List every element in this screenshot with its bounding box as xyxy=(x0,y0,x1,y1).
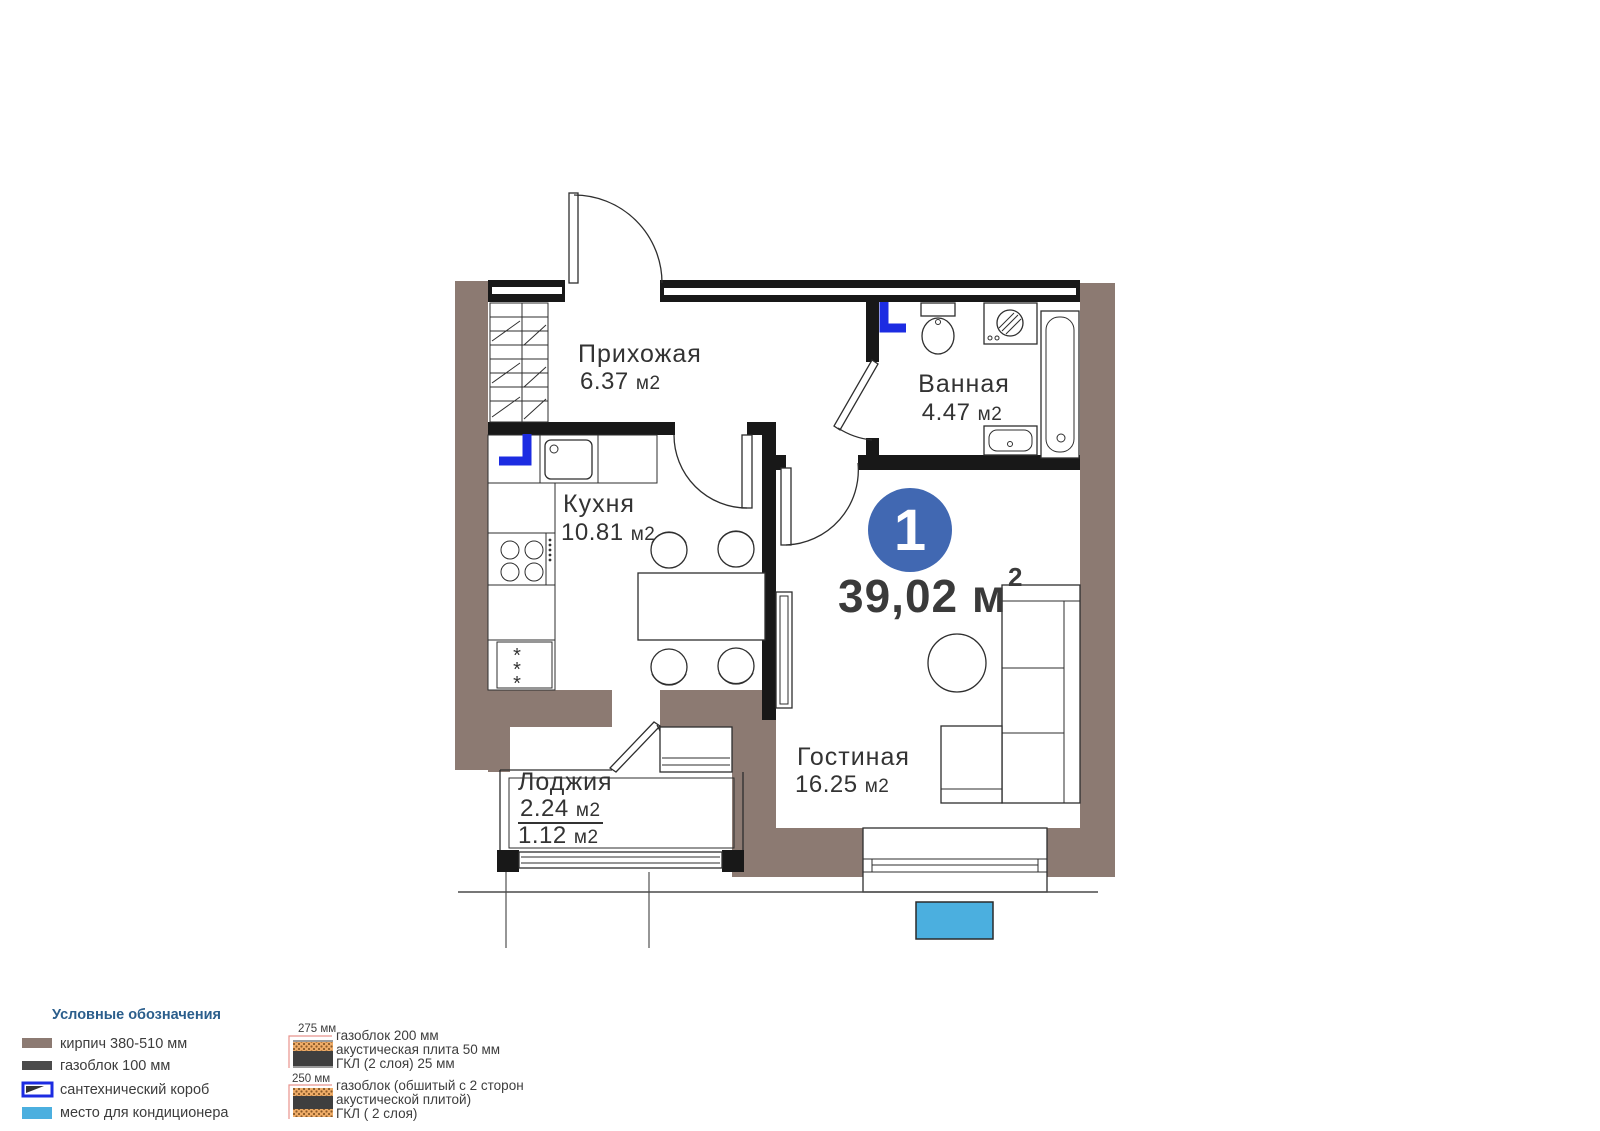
bathtub xyxy=(1041,311,1079,458)
living-room-window xyxy=(863,828,1047,892)
room-area-loggia-half: 1.12 м2 xyxy=(518,822,599,849)
room-area-loggia-full: 2.24 м2 xyxy=(520,795,601,822)
gasblock-swatch xyxy=(22,1061,52,1070)
acoustic-layer xyxy=(293,1042,333,1051)
room-label-living: Гостиная xyxy=(797,743,910,771)
legend-item-plumbing-box: сантехнический короб xyxy=(23,1082,209,1098)
legend-title: Условные обозначения xyxy=(52,1007,221,1023)
svg-text:ГКЛ ( 2 слоя): ГКЛ ( 2 слоя) xyxy=(336,1106,417,1121)
wall-type-250: 250 мм газоблок (обшитый с 2 сторон акус… xyxy=(289,1073,524,1121)
svg-text:место для кондиционера: место для кондиционера xyxy=(60,1105,229,1121)
total-area-label: 39,02 м 2 xyxy=(838,562,1022,622)
legend-item-ac: место для кондиционера xyxy=(22,1105,229,1121)
legend: Условные обозначения кирпич 380-510 мм г… xyxy=(22,1007,229,1121)
gasblock-layer xyxy=(293,1096,333,1109)
svg-text:акустическая плита 50 мм: акустическая плита 50 мм xyxy=(336,1042,500,1057)
legend-item-brick: кирпич 380-510 мм xyxy=(22,1036,187,1052)
badge-number: 1 xyxy=(894,498,926,563)
floor-plan-canvas: * * * xyxy=(0,0,1600,1131)
wall-type-legend: 275 мм газоблок 200 мм акустическая плит… xyxy=(289,1023,524,1121)
room-area-kitchen: 10.81 м2 xyxy=(561,519,655,546)
svg-text:*: * xyxy=(513,673,521,695)
floor-plan: * * * xyxy=(455,193,1115,948)
dining-table xyxy=(638,573,765,640)
bathroom-sink xyxy=(984,426,1037,455)
kitchen-sink xyxy=(545,440,592,479)
toilet xyxy=(921,303,955,354)
svg-text:2: 2 xyxy=(1008,562,1022,592)
entry-door xyxy=(569,193,662,283)
room-label-kitchen: Кухня xyxy=(563,490,635,518)
acoustic-layer-bottom xyxy=(293,1109,333,1117)
washing-machine xyxy=(984,303,1037,344)
svg-text:ГКЛ (2 слоя) 25 мм: ГКЛ (2 слоя) 25 мм xyxy=(336,1056,455,1071)
room-label-hallway: Прихожая xyxy=(578,340,702,368)
ac-swatch xyxy=(22,1107,52,1119)
room-label-loggia: Лоджия xyxy=(518,768,613,796)
svg-text:275 мм: 275 мм xyxy=(298,1023,336,1035)
wardrobe xyxy=(776,592,792,708)
room-label-bathroom: Ванная xyxy=(918,370,1010,398)
area-badge: 1 xyxy=(868,488,952,572)
ac-spot xyxy=(916,902,993,939)
svg-text:250 мм: 250 мм xyxy=(292,1073,330,1085)
svg-text:газоблок 100 мм: газоблок 100 мм xyxy=(60,1058,170,1074)
brick-swatch xyxy=(22,1038,52,1048)
svg-text:39,02 м: 39,02 м xyxy=(838,570,1007,622)
acoustic-layer-top xyxy=(293,1088,333,1096)
svg-text:газоблок 200 мм: газоблок 200 мм xyxy=(336,1028,439,1043)
svg-text:акустической плитой): акустической плитой) xyxy=(336,1092,471,1107)
loggia-window-block xyxy=(660,727,732,772)
svg-text:кирпич 380-510 мм: кирпич 380-510 мм xyxy=(60,1036,187,1052)
svg-text:газоблок (обшитый с 2 сторон: газоблок (обшитый с 2 сторон xyxy=(336,1078,524,1093)
wall-type-275: 275 мм газоблок 200 мм акустическая плит… xyxy=(289,1023,500,1071)
svg-text:сантехнический короб: сантехнический короб xyxy=(60,1082,209,1098)
room-area-living: 16.25 м2 xyxy=(795,771,889,798)
room-area-bathroom: 4.47 м2 xyxy=(922,399,1003,426)
gasblock-layer xyxy=(293,1051,333,1066)
legend-item-gasblock: газоблок 100 мм xyxy=(22,1058,170,1074)
room-area-hallway: 6.37 м2 xyxy=(580,368,661,395)
